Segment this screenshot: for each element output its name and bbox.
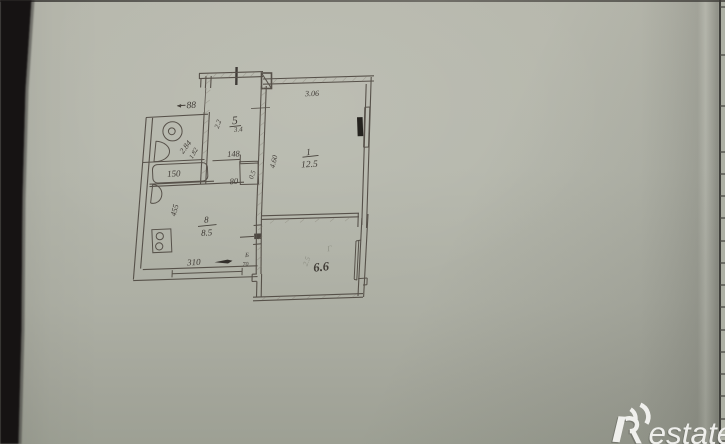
svg-text:Г: Г <box>325 244 332 254</box>
svg-text:88: 88 <box>186 101 196 111</box>
svg-text:estate: estate <box>649 415 725 444</box>
svg-text:3.4: 3.4 <box>233 125 244 134</box>
svg-text:455: 455 <box>169 203 181 217</box>
svg-text:0.5: 0.5 <box>247 169 258 180</box>
svg-text:70: 70 <box>242 262 248 268</box>
svg-text:80: 80 <box>229 176 239 186</box>
svg-text:6.6: 6.6 <box>313 259 331 275</box>
svg-text:2.2: 2.2 <box>213 118 223 129</box>
svg-text:2.5: 2.5 <box>301 255 313 267</box>
svg-text:12.5: 12.5 <box>301 160 318 171</box>
svg-text:4.60: 4.60 <box>268 154 280 169</box>
svg-text:150: 150 <box>167 168 182 179</box>
svg-text:8: 8 <box>204 214 210 224</box>
svg-text:310: 310 <box>186 257 202 268</box>
svg-text:Б: Б <box>244 252 249 259</box>
svg-text:148: 148 <box>227 148 241 159</box>
svg-text:8.5: 8.5 <box>201 227 213 238</box>
svg-text:3.06: 3.06 <box>304 89 319 99</box>
